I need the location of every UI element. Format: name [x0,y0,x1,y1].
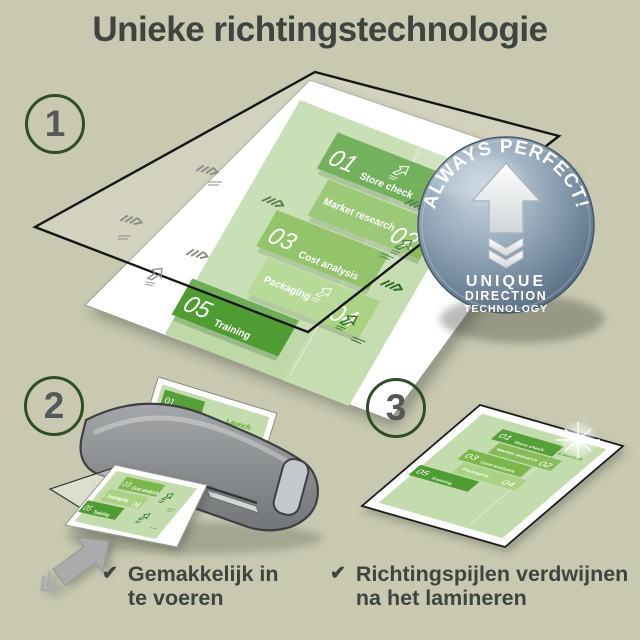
bullet-line: Gemakkelijk in [128,562,279,586]
infographic: 01 Store check Market research 02 03 Cos… [0,0,640,640]
badge-line-technology: TECHNOLOGY [464,303,548,315]
bullet-line: te voeren [128,586,279,610]
page-title: Unieke richtingstechnologie [0,10,640,50]
step-1-circle: 1 [25,94,85,154]
badge-line-direction: DIRECTION [465,289,547,303]
bullet-line: Richtingspijlen verdwijnen [356,562,628,586]
illustration-canvas: 01 Store check Market research 02 03 Cos… [0,0,640,640]
step-2-number: 2 [44,385,65,427]
bullet-easy-feed: ✔ Gemakkelijk in te voeren [102,562,279,610]
step-1-number: 1 [45,103,66,145]
step-3-circle: 3 [366,378,426,438]
bullet-line: na het lamineren [356,586,628,610]
check-icon: ✔ [102,562,118,587]
badge-line-unique: UNIQUE [466,273,546,290]
step-2-circle: 2 [24,376,84,436]
step-3-number: 3 [386,387,407,429]
always-perfect-badge: ALWAYS PERFECT! UNIQUE DIRECTION TECHNOL… [418,136,604,343]
check-icon: ✔ [330,562,346,587]
bullet-arrows-disappear: ✔ Richtingspijlen verdwijnen na het lami… [330,562,628,610]
